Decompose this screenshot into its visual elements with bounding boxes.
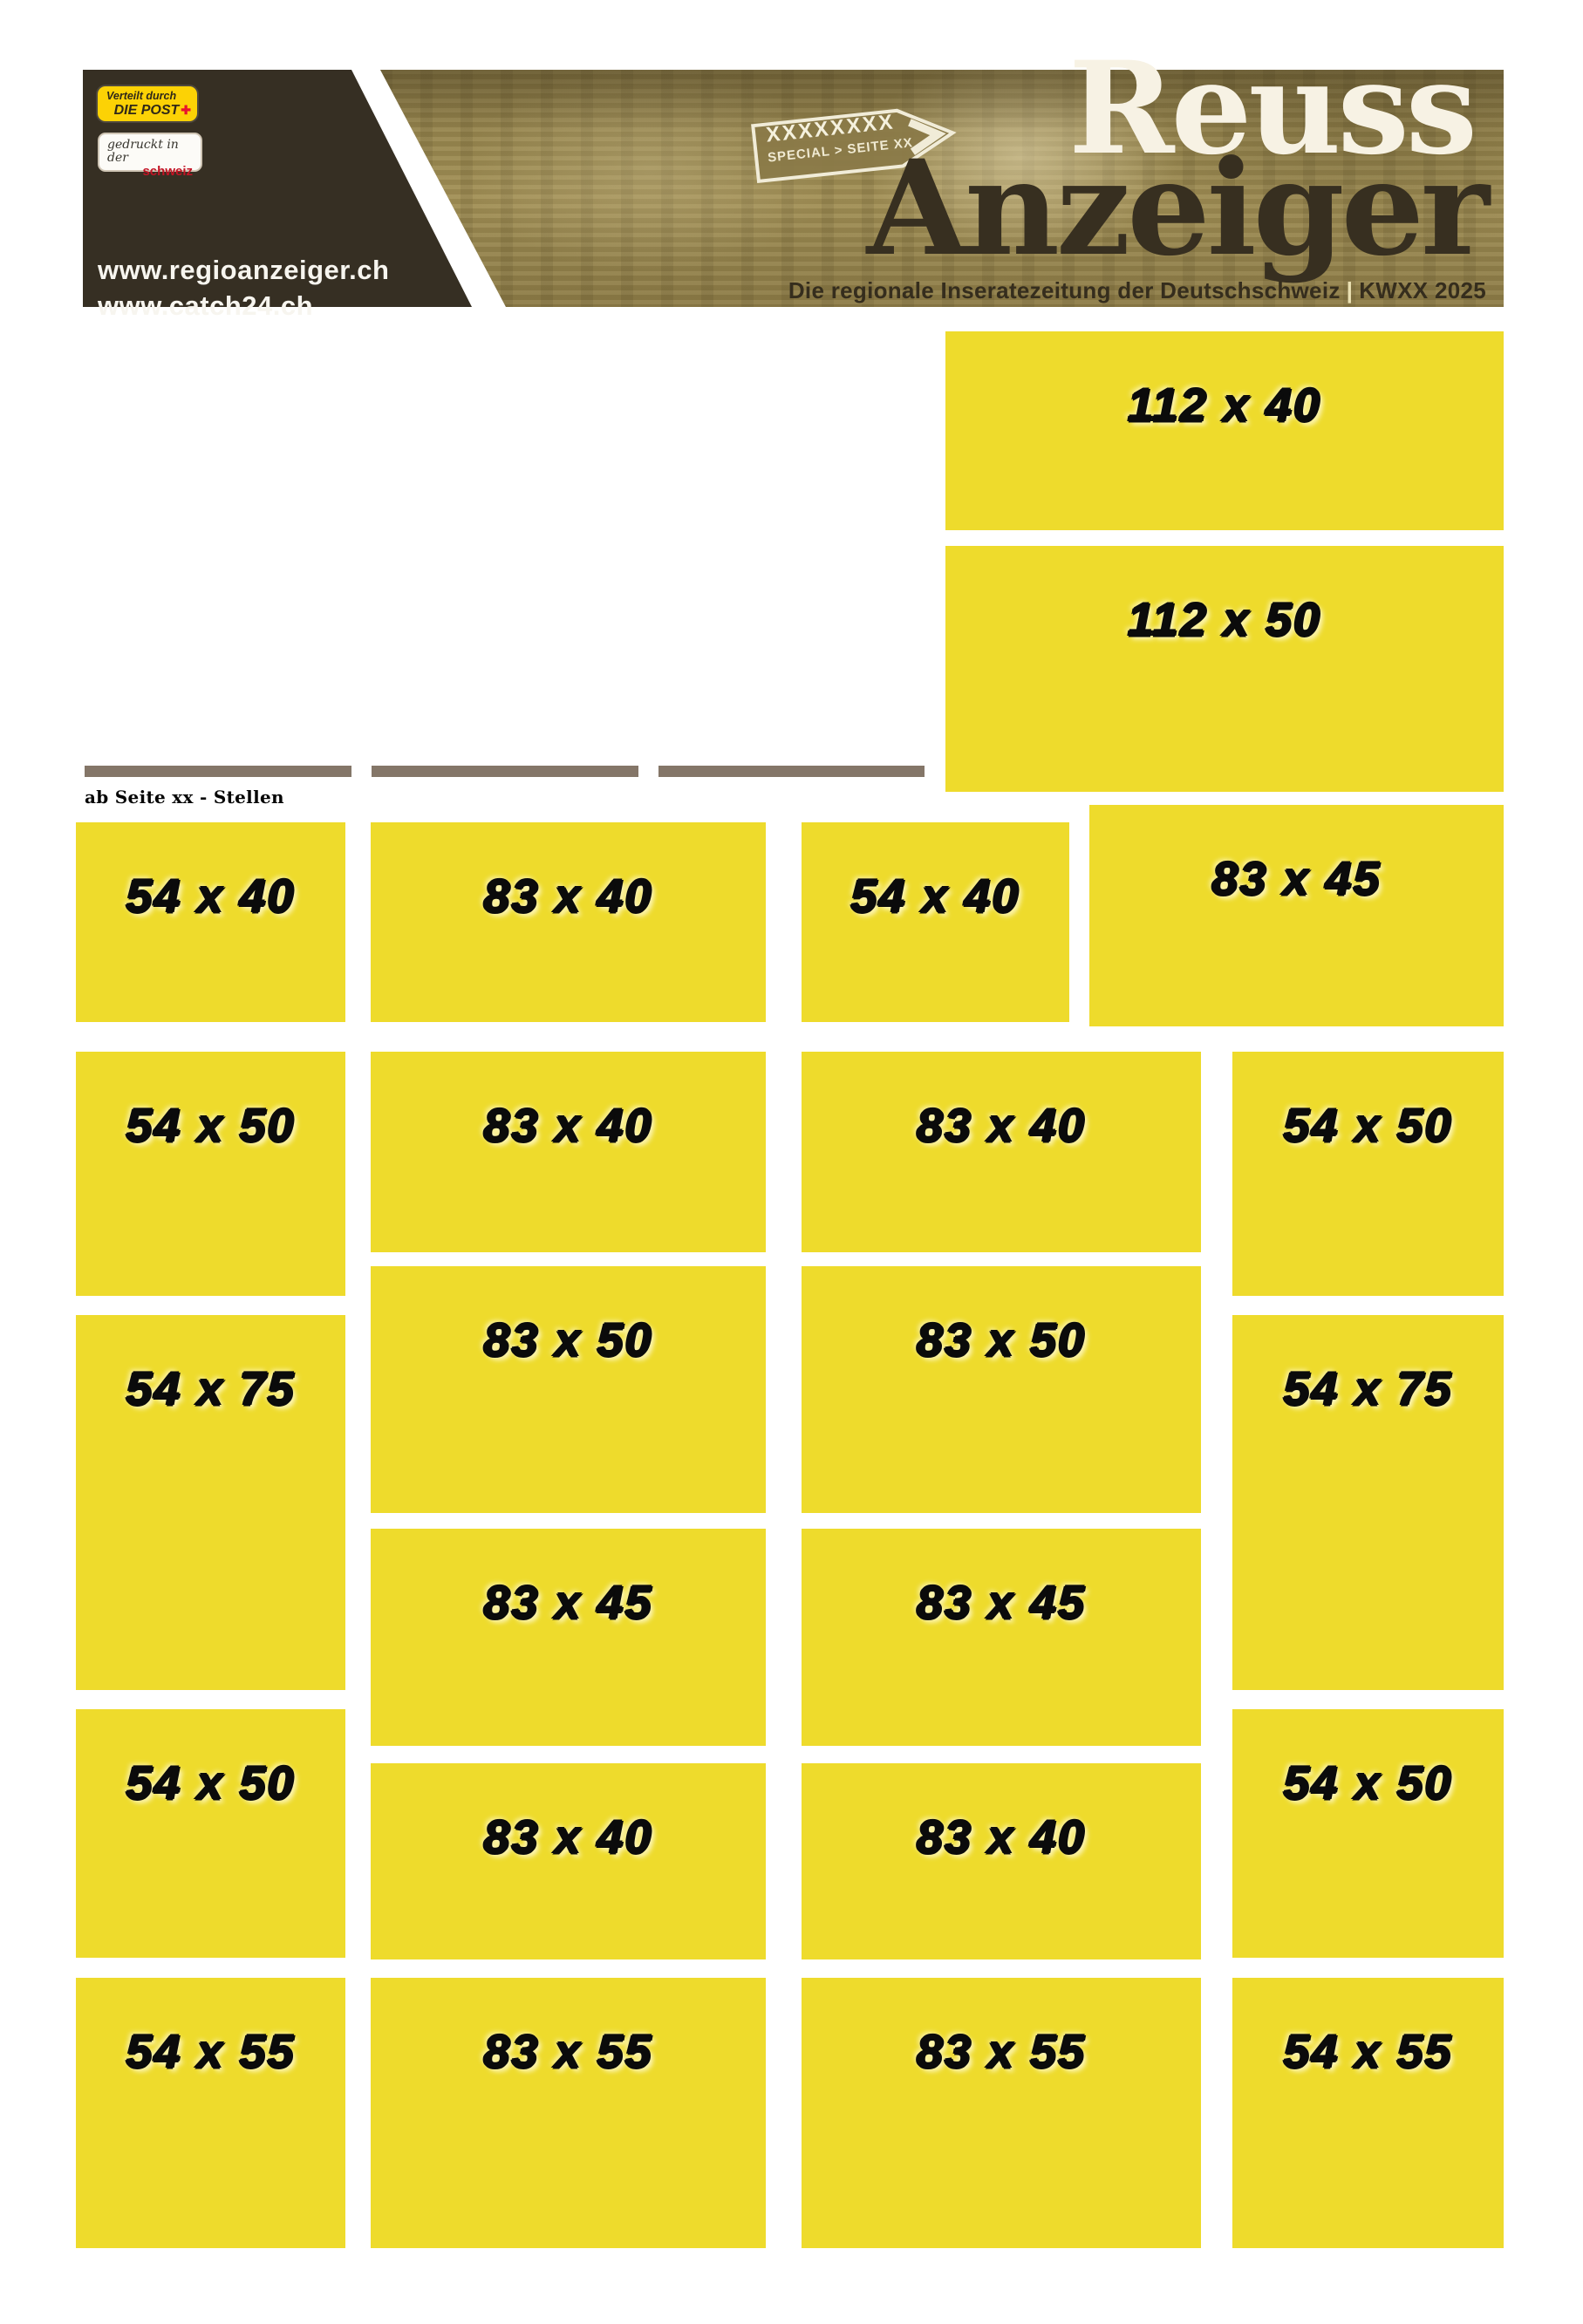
ad-slot-83x45-15: 83 x 45	[802, 1529, 1201, 1746]
ad-slot-label: 83 x 40	[917, 1102, 1086, 1149]
ad-slot-54x40-2: 54 x 40	[76, 822, 345, 1022]
ad-slot-label: 83 x 45	[483, 1579, 652, 1626]
ad-slot-label: 112 x 40	[1128, 382, 1321, 429]
ad-slot-label: 83 x 40	[483, 1814, 652, 1861]
ad-slot-label: 112 x 50	[1128, 596, 1321, 644]
ad-slot-label: 83 x 45	[917, 1579, 1086, 1626]
ad-slot-label: 83 x 50	[483, 1317, 652, 1364]
ad-slot-label: 54 x 55	[126, 2028, 295, 2075]
divider-bar-1	[85, 766, 351, 777]
ad-slot-112x40-0: 112 x 40	[945, 331, 1504, 530]
ad-slot-83x55-22: 83 x 55	[802, 1978, 1201, 2248]
ad-slot-83x45-5: 83 x 45	[1089, 805, 1504, 1026]
website-urls: www.regioanzeiger.ch www.catch24.ch	[98, 252, 389, 324]
ad-slot-54x55-23: 54 x 55	[1232, 1978, 1504, 2248]
ad-slot-label: 83 x 45	[1211, 855, 1381, 903]
page: Verteilt durch DIE POST✚ gedruckt in der…	[0, 0, 1583, 2324]
post-badge-line2-row: DIE POST✚	[98, 103, 197, 119]
ad-slot-112x50-1: 112 x 50	[945, 546, 1504, 792]
ad-slot-83x40-17: 83 x 40	[371, 1763, 766, 1959]
url-catch24: www.catch24.ch	[98, 288, 389, 324]
ad-slot-83x40-7: 83 x 40	[371, 1052, 766, 1252]
divider-bar-2	[372, 766, 638, 777]
ad-slot-label: 54 x 40	[850, 873, 1020, 920]
masthead-line2: Anzeiger	[867, 143, 1486, 274]
post-badge-line1: Verteilt durch	[98, 86, 197, 103]
ad-slot-label: 54 x 75	[1283, 1366, 1452, 1413]
ad-slot-label: 54 x 50	[1283, 1102, 1452, 1149]
ad-slot-54x50-16: 54 x 50	[76, 1709, 345, 1958]
ad-slot-83x40-3: 83 x 40	[371, 822, 766, 1022]
ad-slot-83x40-8: 83 x 40	[802, 1052, 1201, 1252]
divider-bar-3	[658, 766, 925, 777]
ad-slot-label: 54 x 55	[1283, 2028, 1452, 2075]
ad-slot-54x75-13: 54 x 75	[1232, 1315, 1504, 1690]
ad-slot-label: 54 x 40	[126, 873, 295, 920]
ad-slot-label: 54 x 75	[126, 1366, 295, 1413]
swiss-post-cross-icon: ✚	[181, 103, 191, 117]
ad-slot-label: 83 x 55	[917, 2028, 1086, 2075]
ad-slot-label: 54 x 50	[1283, 1760, 1452, 1807]
tagline-issue: KWXX 2025	[1359, 277, 1486, 303]
ad-slot-label: 54 x 50	[126, 1760, 295, 1807]
ad-slot-54x50-6: 54 x 50	[76, 1052, 345, 1296]
ad-slot-54x50-19: 54 x 50	[1232, 1709, 1504, 1958]
url-regioanzeiger: www.regioanzeiger.ch	[98, 252, 389, 288]
post-badge-line2: DIE POST	[114, 103, 180, 118]
print-badge-line1: gedruckt in der	[99, 134, 201, 166]
tagline: Die regionale Inseratezeitung der Deutsc…	[788, 277, 1486, 304]
ad-slot-83x40-18: 83 x 40	[802, 1763, 1201, 1959]
ad-slot-54x75-10: 54 x 75	[76, 1315, 345, 1690]
post-distribution-badge: Verteilt durch DIE POST✚	[98, 86, 197, 121]
ad-slot-label: 54 x 50	[126, 1102, 295, 1149]
ad-slot-54x50-9: 54 x 50	[1232, 1052, 1504, 1296]
ad-slot-label: 83 x 40	[483, 873, 652, 920]
ad-slot-83x50-12: 83 x 50	[802, 1266, 1201, 1513]
ad-slot-83x45-14: 83 x 45	[371, 1529, 766, 1746]
ad-slot-label: 83 x 40	[917, 1814, 1086, 1861]
tagline-text: Die regionale Inseratezeitung der Deutsc…	[788, 277, 1341, 303]
print-badge-line2: schweiz	[99, 165, 201, 180]
ad-slot-83x50-11: 83 x 50	[371, 1266, 766, 1513]
ad-slot-54x55-20: 54 x 55	[76, 1978, 345, 2248]
ad-slot-label: 83 x 40	[483, 1102, 652, 1149]
printed-in-switzerland-badge: gedruckt in der schweiz	[98, 133, 202, 172]
ad-slot-54x40-4: 54 x 40	[802, 822, 1069, 1022]
ad-slot-label: 83 x 50	[917, 1317, 1086, 1364]
ad-slot-label: 83 x 55	[483, 2028, 652, 2075]
section-label: ab Seite xx - Stellen	[85, 787, 284, 808]
ad-slot-83x55-21: 83 x 55	[371, 1978, 766, 2248]
tagline-separator: |	[1341, 277, 1360, 303]
